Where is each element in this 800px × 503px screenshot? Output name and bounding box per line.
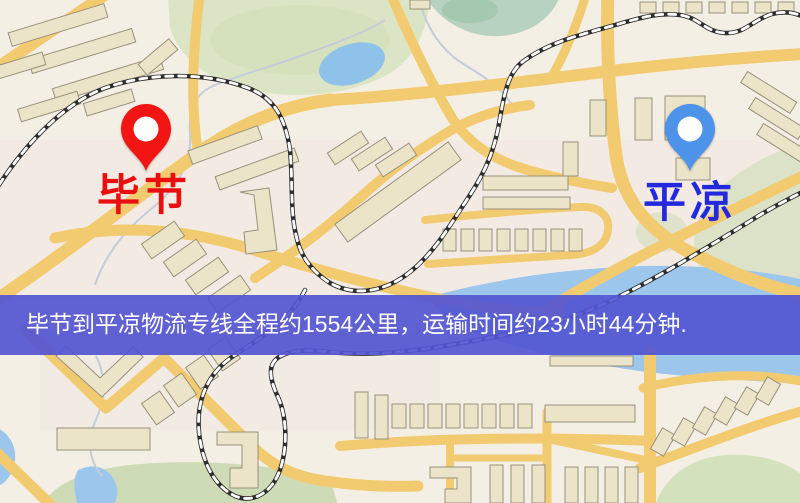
map-pin-icon [120, 103, 172, 172]
origin-label: 毕节 [97, 175, 191, 218]
map-pin-icon [664, 103, 716, 172]
map-canvas [0, 0, 800, 503]
map-view: 毕节 平凉 毕节到平凉物流专线全程约1554公里，运输时间约23小时44分钟. [0, 0, 800, 503]
pin-hole [678, 117, 703, 142]
pin-hole [134, 117, 159, 142]
route-banner: 毕节到平凉物流专线全程约1554公里，运输时间约23小时44分钟. [0, 295, 800, 355]
destination-marker [664, 103, 716, 172]
origin-marker [120, 103, 172, 172]
route-banner-text: 毕节到平凉物流专线全程约1554公里，运输时间约23小时44分钟. [26, 311, 687, 339]
destination-label: 平凉 [643, 182, 737, 225]
